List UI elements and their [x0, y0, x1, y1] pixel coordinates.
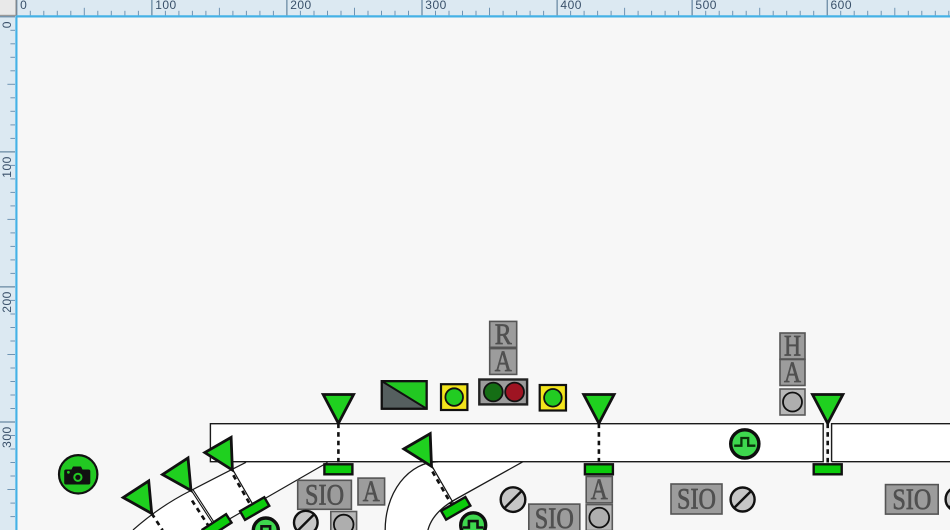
svg-text:300: 300	[0, 426, 14, 448]
svg-text:0: 0	[0, 21, 14, 28]
svg-text:0: 0	[20, 0, 27, 12]
svg-text:200: 200	[290, 0, 312, 12]
svg-text:SIO: SIO	[677, 483, 716, 516]
svg-text:600: 600	[831, 0, 853, 12]
svg-text:A: A	[784, 356, 801, 389]
svg-text:SIO: SIO	[305, 478, 344, 511]
svg-text:A: A	[495, 345, 512, 378]
svg-text:SIO: SIO	[535, 502, 574, 530]
svg-text:300: 300	[425, 0, 447, 12]
svg-text:A: A	[591, 473, 608, 506]
svg-text:500: 500	[695, 0, 717, 12]
svg-text:100: 100	[0, 156, 14, 178]
svg-text:100: 100	[155, 0, 177, 12]
svg-text:SIO: SIO	[892, 483, 931, 516]
svg-text:A: A	[363, 475, 380, 508]
svg-text:400: 400	[560, 0, 582, 12]
svg-text:200: 200	[0, 291, 14, 313]
